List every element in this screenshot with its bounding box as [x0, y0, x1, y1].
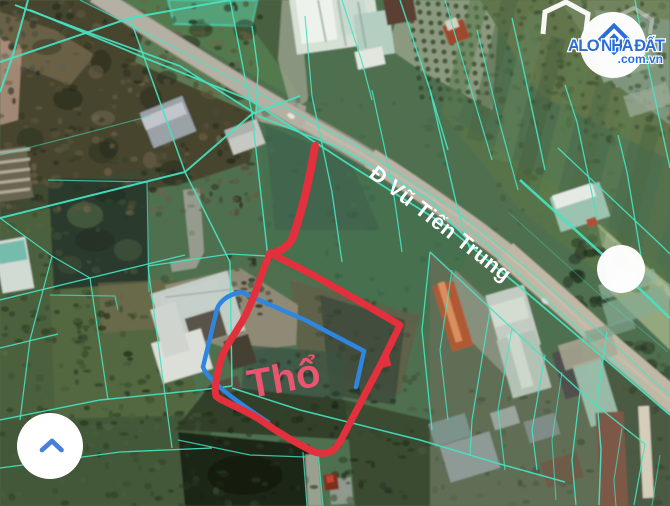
svg-text:.com.vn: .com.vn: [618, 52, 663, 66]
